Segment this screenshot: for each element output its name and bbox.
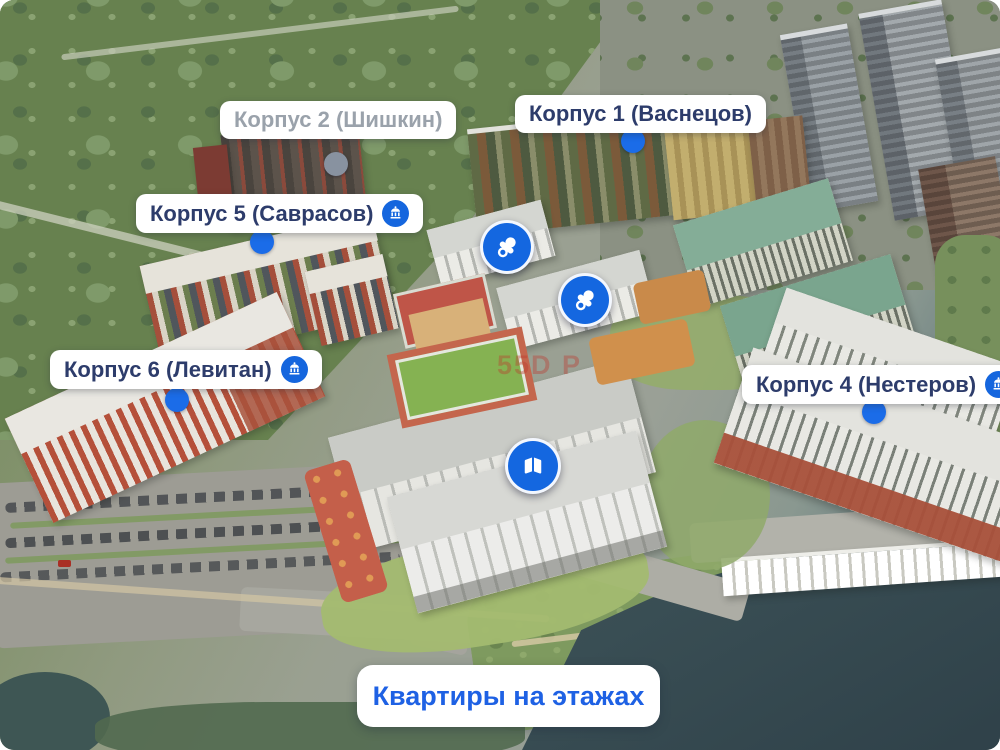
building-dot-korpus5[interactable] xyxy=(250,230,274,254)
flats-by-floors-button[interactable]: Квартиры на этажах xyxy=(357,665,660,727)
pacifier-icon xyxy=(570,285,600,315)
building-icon xyxy=(985,371,1000,398)
open-book-icon xyxy=(518,451,548,481)
label-text: Корпус 1 (Васнецов) xyxy=(529,101,752,127)
building-dot-korpus6[interactable] xyxy=(165,388,189,412)
kindergarten-marker-1[interactable] xyxy=(480,220,534,274)
building-icon xyxy=(382,200,409,227)
pacifier-icon xyxy=(492,232,522,262)
label-korpus-1[interactable]: Корпус 1 (Васнецов) xyxy=(515,95,766,133)
label-korpus-6[interactable]: Корпус 6 (Левитан) xyxy=(50,350,322,389)
red-car xyxy=(58,560,71,567)
label-korpus-5[interactable]: Корпус 5 (Саврасов) xyxy=(136,194,423,233)
building-dot-korpus2 xyxy=(324,152,348,176)
genplan-map: 55D Р xyxy=(0,0,1000,750)
render-watermark: 55D Р xyxy=(497,350,582,381)
building-icon xyxy=(281,356,308,383)
label-korpus-2: Корпус 2 (Шишкин) xyxy=(220,101,456,139)
school-marker[interactable] xyxy=(505,438,561,494)
label-korpus-4[interactable]: Корпус 4 (Нестеров) xyxy=(742,365,1000,404)
label-text: Корпус 5 (Саврасов) xyxy=(150,201,373,227)
label-text: Корпус 4 (Нестеров) xyxy=(756,372,976,398)
label-text: Корпус 6 (Левитан) xyxy=(64,357,272,383)
kindergarten-marker-2[interactable] xyxy=(558,273,612,327)
label-text: Корпус 2 (Шишкин) xyxy=(234,107,442,133)
